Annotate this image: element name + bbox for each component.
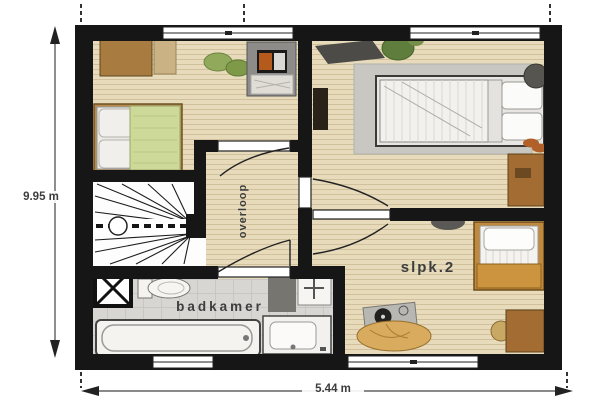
room-label-bedroom2: slpk.2 <box>390 259 466 276</box>
floor-plan-canvas: overloop badkamer slpk.2 9.95 m 5.44 m <box>0 0 600 400</box>
desk <box>508 154 544 206</box>
wall-bottom <box>75 354 562 370</box>
bed-center-strip <box>488 80 502 142</box>
sink-detail <box>320 347 326 351</box>
arrow-down <box>50 340 60 358</box>
wall-left <box>75 25 93 370</box>
window-bedroom2 <box>348 356 478 368</box>
arrow-right <box>555 386 573 396</box>
window-tick <box>225 31 232 35</box>
window-top-left <box>163 27 293 39</box>
door-master-leaf <box>299 177 311 208</box>
arrow-up <box>50 26 60 44</box>
wall-bathroom-north-left <box>93 266 218 279</box>
floor-plan-drawing <box>0 0 600 400</box>
window-tick <box>472 31 479 35</box>
door-bedroom2-leaf <box>313 210 390 219</box>
pillow <box>484 228 534 250</box>
wall-stair-east <box>194 140 206 216</box>
stair-newel <box>186 214 206 238</box>
window-tick <box>410 360 417 364</box>
door-bathroom-leaf <box>218 267 290 277</box>
sink-faucet <box>291 345 296 350</box>
wall-stair-north <box>93 170 194 182</box>
wall-right <box>544 25 562 370</box>
window-bathroom <box>153 356 213 368</box>
wall-bedroom-divider <box>390 208 544 221</box>
blanket <box>477 264 541 288</box>
tub-drain <box>243 335 249 341</box>
wall-bathroom-east <box>333 266 345 354</box>
dimension-label-width: 5.44 m <box>302 383 364 395</box>
room-label-landing-text: overloop <box>237 184 249 238</box>
side-table <box>154 38 176 74</box>
dimension-label-height: 9.95 m <box>12 191 70 203</box>
walking-line-start <box>109 217 127 235</box>
pillow <box>502 113 542 140</box>
stove-glass <box>274 53 285 70</box>
wall-landing-stub-right <box>290 140 298 152</box>
room-label-bathroom: badkamer <box>150 299 290 314</box>
stove-fire <box>259 53 272 70</box>
plant <box>226 60 250 76</box>
room-label-landing: overloop <box>232 182 254 240</box>
window-top-right <box>410 27 540 39</box>
wall-divider-upper <box>298 41 312 177</box>
desk <box>506 310 544 352</box>
wardrobe <box>313 88 328 130</box>
arrow-left <box>81 386 99 396</box>
beanbag <box>357 321 431 351</box>
desk-item <box>515 168 531 178</box>
